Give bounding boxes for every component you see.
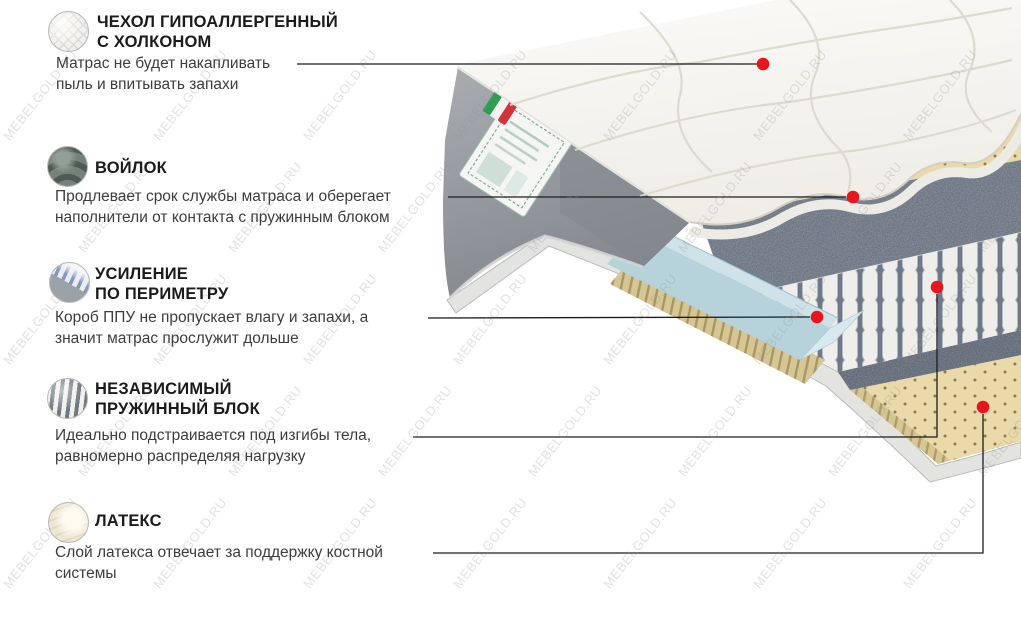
- mattress-infographic: MEBELGOLD.RUMEBELGOLD.RUMEBELGOLD.RUMEBE…: [0, 0, 1021, 625]
- latex-icon: [48, 502, 89, 543]
- section-description: Короб ППУ не пропускает влагу и запахи, …: [55, 308, 368, 349]
- perimeter-reinforcement-icon: [49, 262, 90, 303]
- section-title: ВОЙЛОК: [95, 158, 167, 178]
- section-title: УСИЛЕНИЕ ПО ПЕРИМЕТРУ: [95, 264, 228, 304]
- section-description: Продлевает срок службы матраса и оберега…: [55, 187, 391, 228]
- pocket-springs-icon: [47, 378, 88, 419]
- section-description: Матрас не будет накапливать пыль и впиты…: [56, 54, 270, 95]
- dot-cover: [757, 58, 770, 71]
- felt-icon: [47, 146, 88, 187]
- dot-perimeter: [811, 311, 824, 324]
- section-description: Идеально подстраивается под изгибы тела,…: [55, 426, 371, 467]
- section-title: ЛАТЕКС: [95, 511, 162, 531]
- section-description: Слой латекса отвечает за поддержку костн…: [55, 543, 383, 584]
- dot-latex: [977, 401, 990, 414]
- dot-felt: [847, 191, 860, 204]
- section-title: НЕЗАВИСИМЫЙ ПРУЖИННЫЙ БЛОК: [95, 379, 260, 419]
- quilt-icon: [48, 11, 89, 52]
- dot-springs: [931, 281, 944, 294]
- section-title: ЧЕХОЛ ГИПОАЛЛЕРГЕННЫЙ С ХОЛКОНОМ: [97, 12, 338, 52]
